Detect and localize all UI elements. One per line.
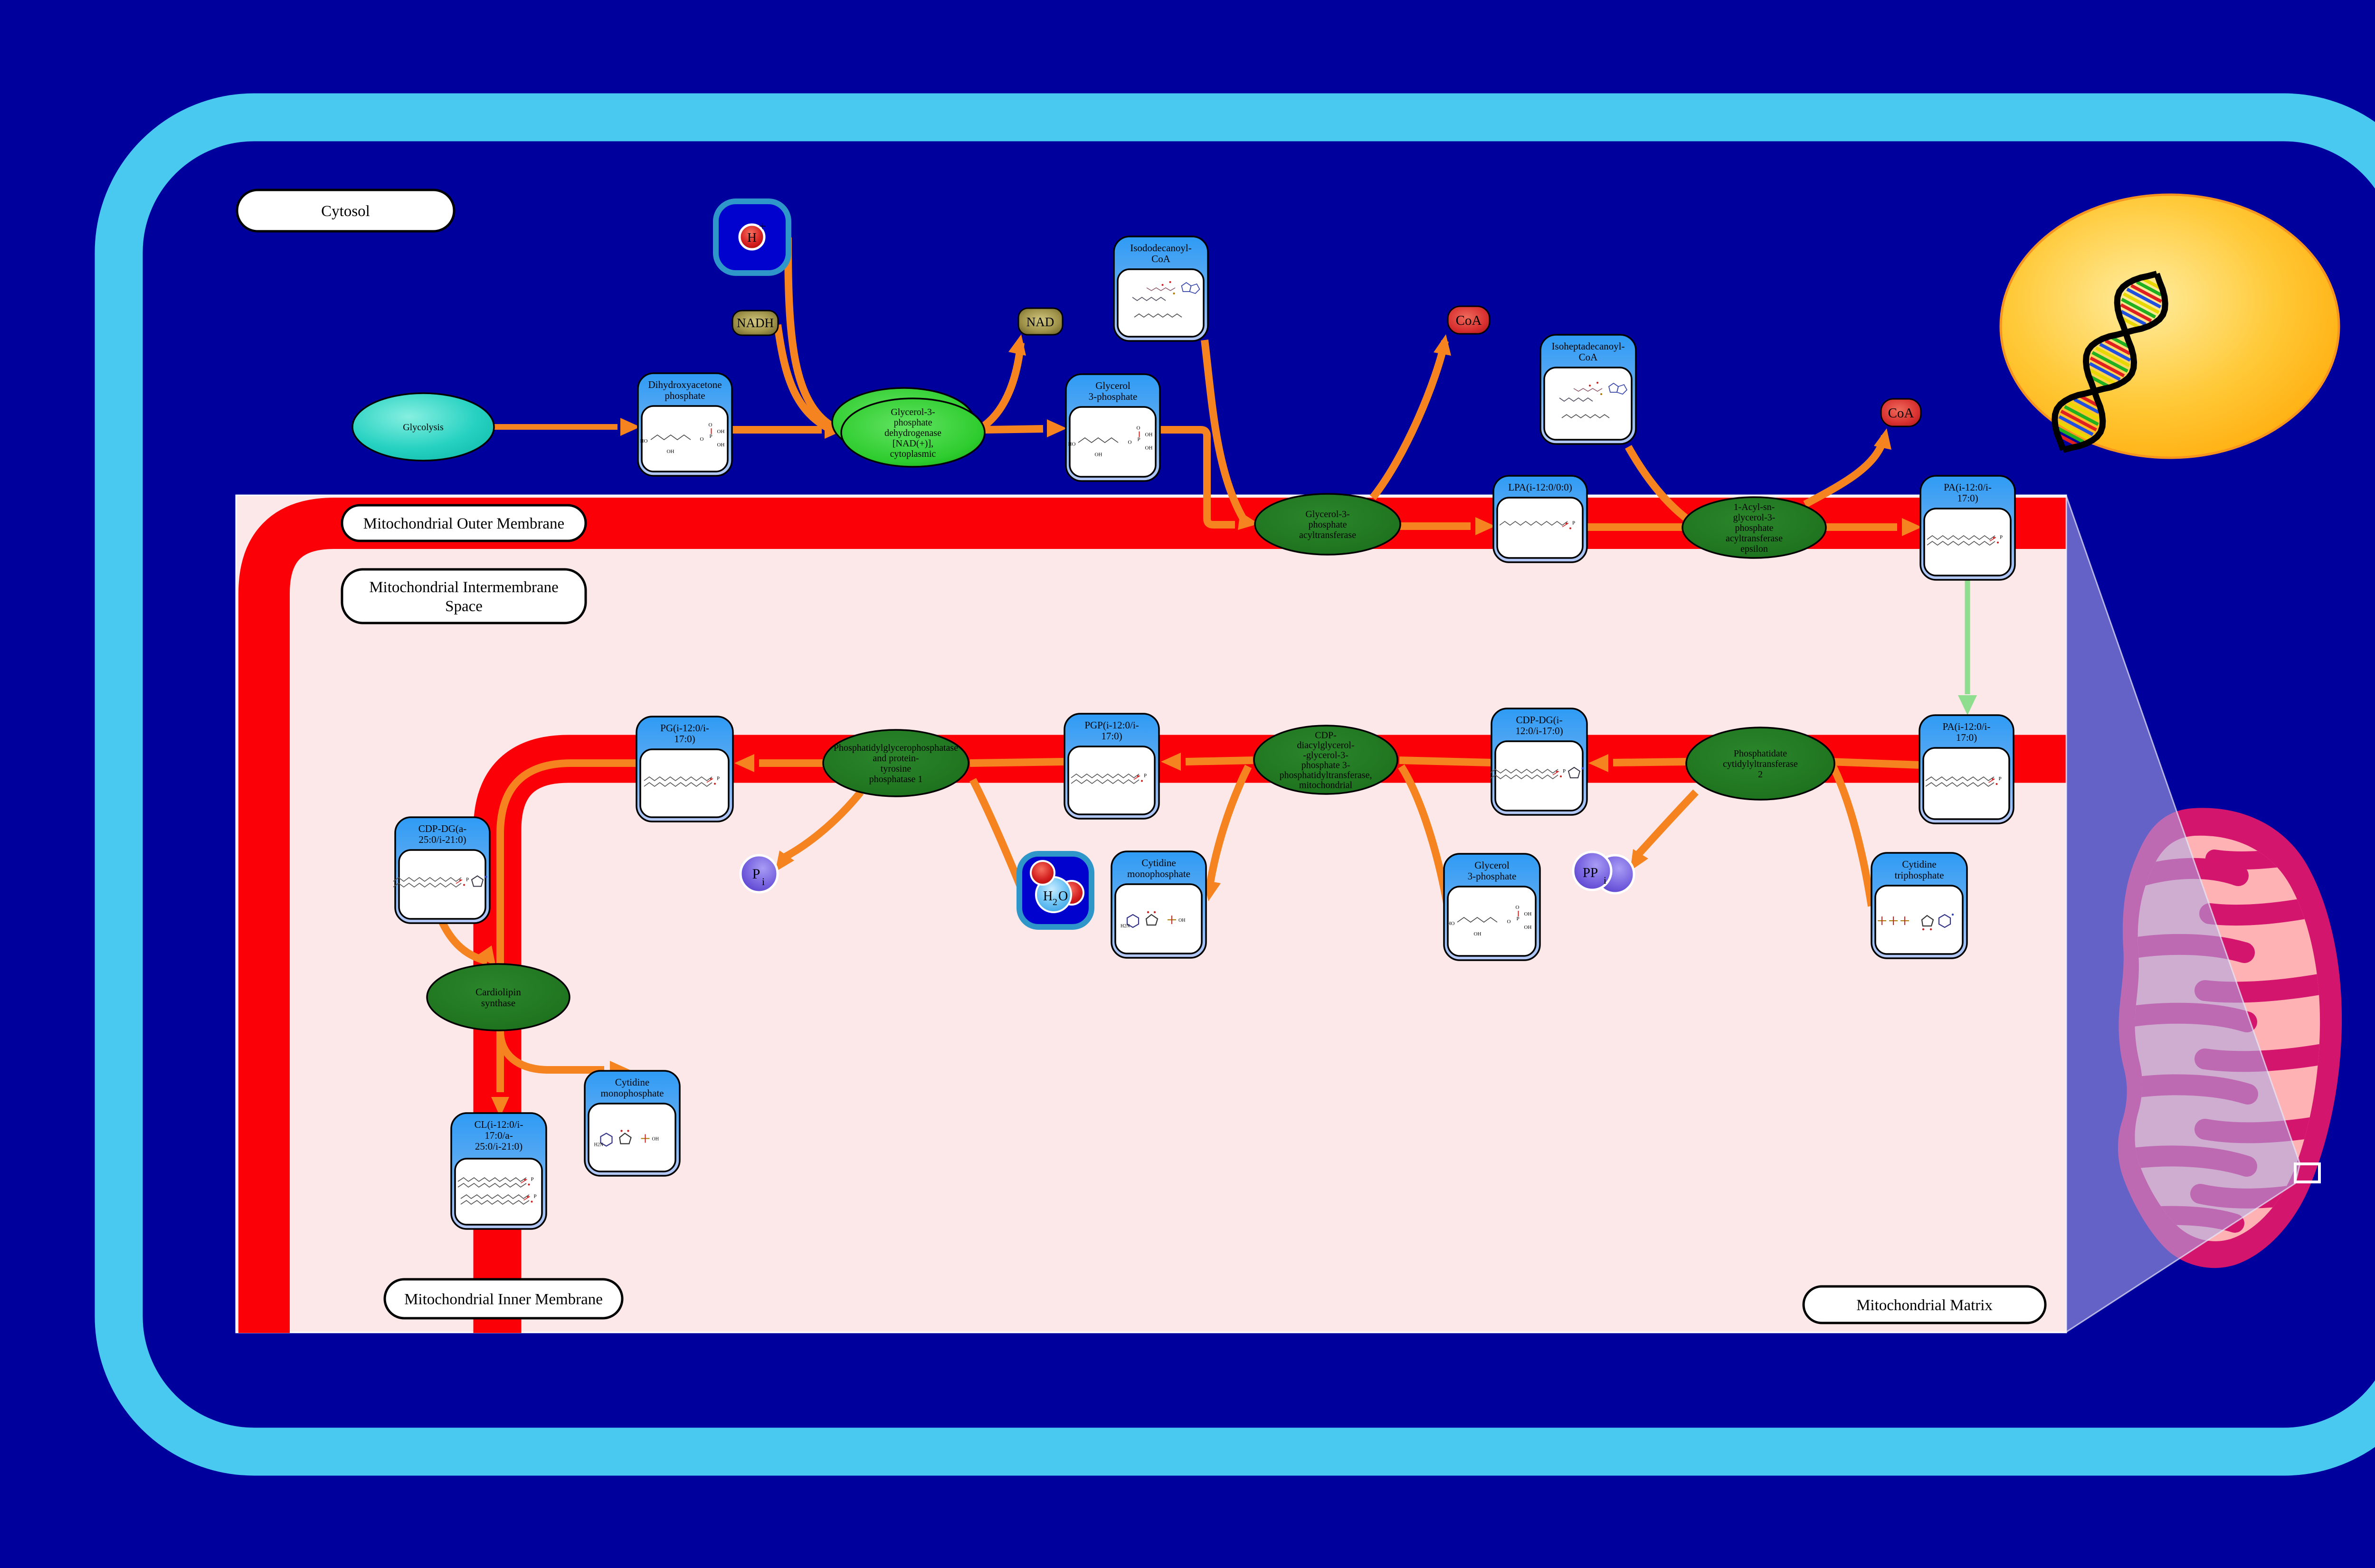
svg-text:P: P xyxy=(531,1177,534,1182)
svg-text:OH: OH xyxy=(1524,925,1532,930)
svg-text:P: P xyxy=(2000,535,2003,540)
svg-text:OH: OH xyxy=(717,442,725,448)
svg-text:O: O xyxy=(1516,905,1520,910)
svg-text:CoA: CoA xyxy=(1888,406,1914,421)
svg-text:Mitochondrial Matrix: Mitochondrial Matrix xyxy=(1856,1297,1993,1314)
svg-text:HO: HO xyxy=(1068,442,1076,447)
svg-text:CDP-DG(i-12:0/i-17:0): CDP-DG(i-12:0/i-17:0) xyxy=(1515,714,1563,737)
svg-text:P: P xyxy=(534,1194,537,1200)
svg-text:O: O xyxy=(700,436,704,442)
svg-text:H: H xyxy=(747,230,757,245)
svg-text:O: O xyxy=(709,422,712,428)
svg-text:OH: OH xyxy=(1178,918,1185,923)
svg-text:Mitochondrial Inner Membrane: Mitochondrial Inner Membrane xyxy=(404,1291,603,1308)
svg-text:O: O xyxy=(1137,425,1140,431)
svg-text:i: i xyxy=(762,876,765,888)
svg-text:HO: HO xyxy=(640,438,648,444)
svg-text:Glycerol3-phosphate: Glycerol3-phosphate xyxy=(1089,380,1138,402)
svg-text:LPA(i-12:0/0:0): LPA(i-12:0/0:0) xyxy=(1508,482,1572,493)
svg-text:O: O xyxy=(1058,889,1068,904)
svg-text:Glycerol3-phosphate: Glycerol3-phosphate xyxy=(1468,860,1517,882)
svg-text:P: P xyxy=(752,866,760,882)
svg-text:H2N: H2N xyxy=(594,1143,603,1148)
svg-text:Cardiolipinsynthase: Cardiolipinsynthase xyxy=(475,986,521,1009)
svg-text:OH: OH xyxy=(1145,445,1153,451)
svg-text:HO: HO xyxy=(1447,921,1455,926)
svg-text:OH: OH xyxy=(667,449,674,454)
svg-text:O: O xyxy=(1128,440,1132,445)
svg-text:2: 2 xyxy=(1053,897,1057,907)
svg-text:Mitochondrial Outer Membrane: Mitochondrial Outer Membrane xyxy=(363,515,564,532)
svg-text:NAD: NAD xyxy=(1026,315,1054,329)
svg-text:P: P xyxy=(717,776,720,782)
svg-text:CDP-DG(a-25:0/i-21:0): CDP-DG(a-25:0/i-21:0) xyxy=(418,823,466,845)
svg-text:P: P xyxy=(466,877,469,883)
svg-text:P: P xyxy=(1138,437,1140,443)
svg-text:NADH: NADH xyxy=(737,316,774,330)
svg-text:P: P xyxy=(1517,916,1520,922)
svg-text:OH: OH xyxy=(1474,931,1482,937)
svg-text:H2N: H2N xyxy=(1121,924,1130,929)
svg-text:Cytosol: Cytosol xyxy=(321,203,370,220)
svg-text:P: P xyxy=(1999,776,2002,782)
svg-text:PP: PP xyxy=(1583,865,1598,880)
svg-text:CoA: CoA xyxy=(1456,313,1482,328)
svg-text:H: H xyxy=(1043,889,1053,904)
svg-text:Glycerol-3-phosphatedehydrogen: Glycerol-3-phosphatedehydrogenase[NAD(+)… xyxy=(884,407,941,459)
svg-text:Glycolysis: Glycolysis xyxy=(403,422,444,433)
svg-text:P: P xyxy=(1144,773,1147,779)
svg-text:+: + xyxy=(759,219,766,233)
svg-text:OH: OH xyxy=(652,1137,659,1142)
svg-text:P: P xyxy=(1563,768,1566,774)
svg-text:O: O xyxy=(1507,919,1511,925)
svg-text:OH: OH xyxy=(1095,452,1102,458)
svg-text:OH: OH xyxy=(1524,911,1532,917)
svg-text:P: P xyxy=(710,434,712,439)
svg-text:OH: OH xyxy=(717,429,725,435)
svg-text:P: P xyxy=(1572,520,1575,526)
svg-text:OH: OH xyxy=(1145,432,1153,438)
svg-text:i: i xyxy=(1604,875,1606,886)
